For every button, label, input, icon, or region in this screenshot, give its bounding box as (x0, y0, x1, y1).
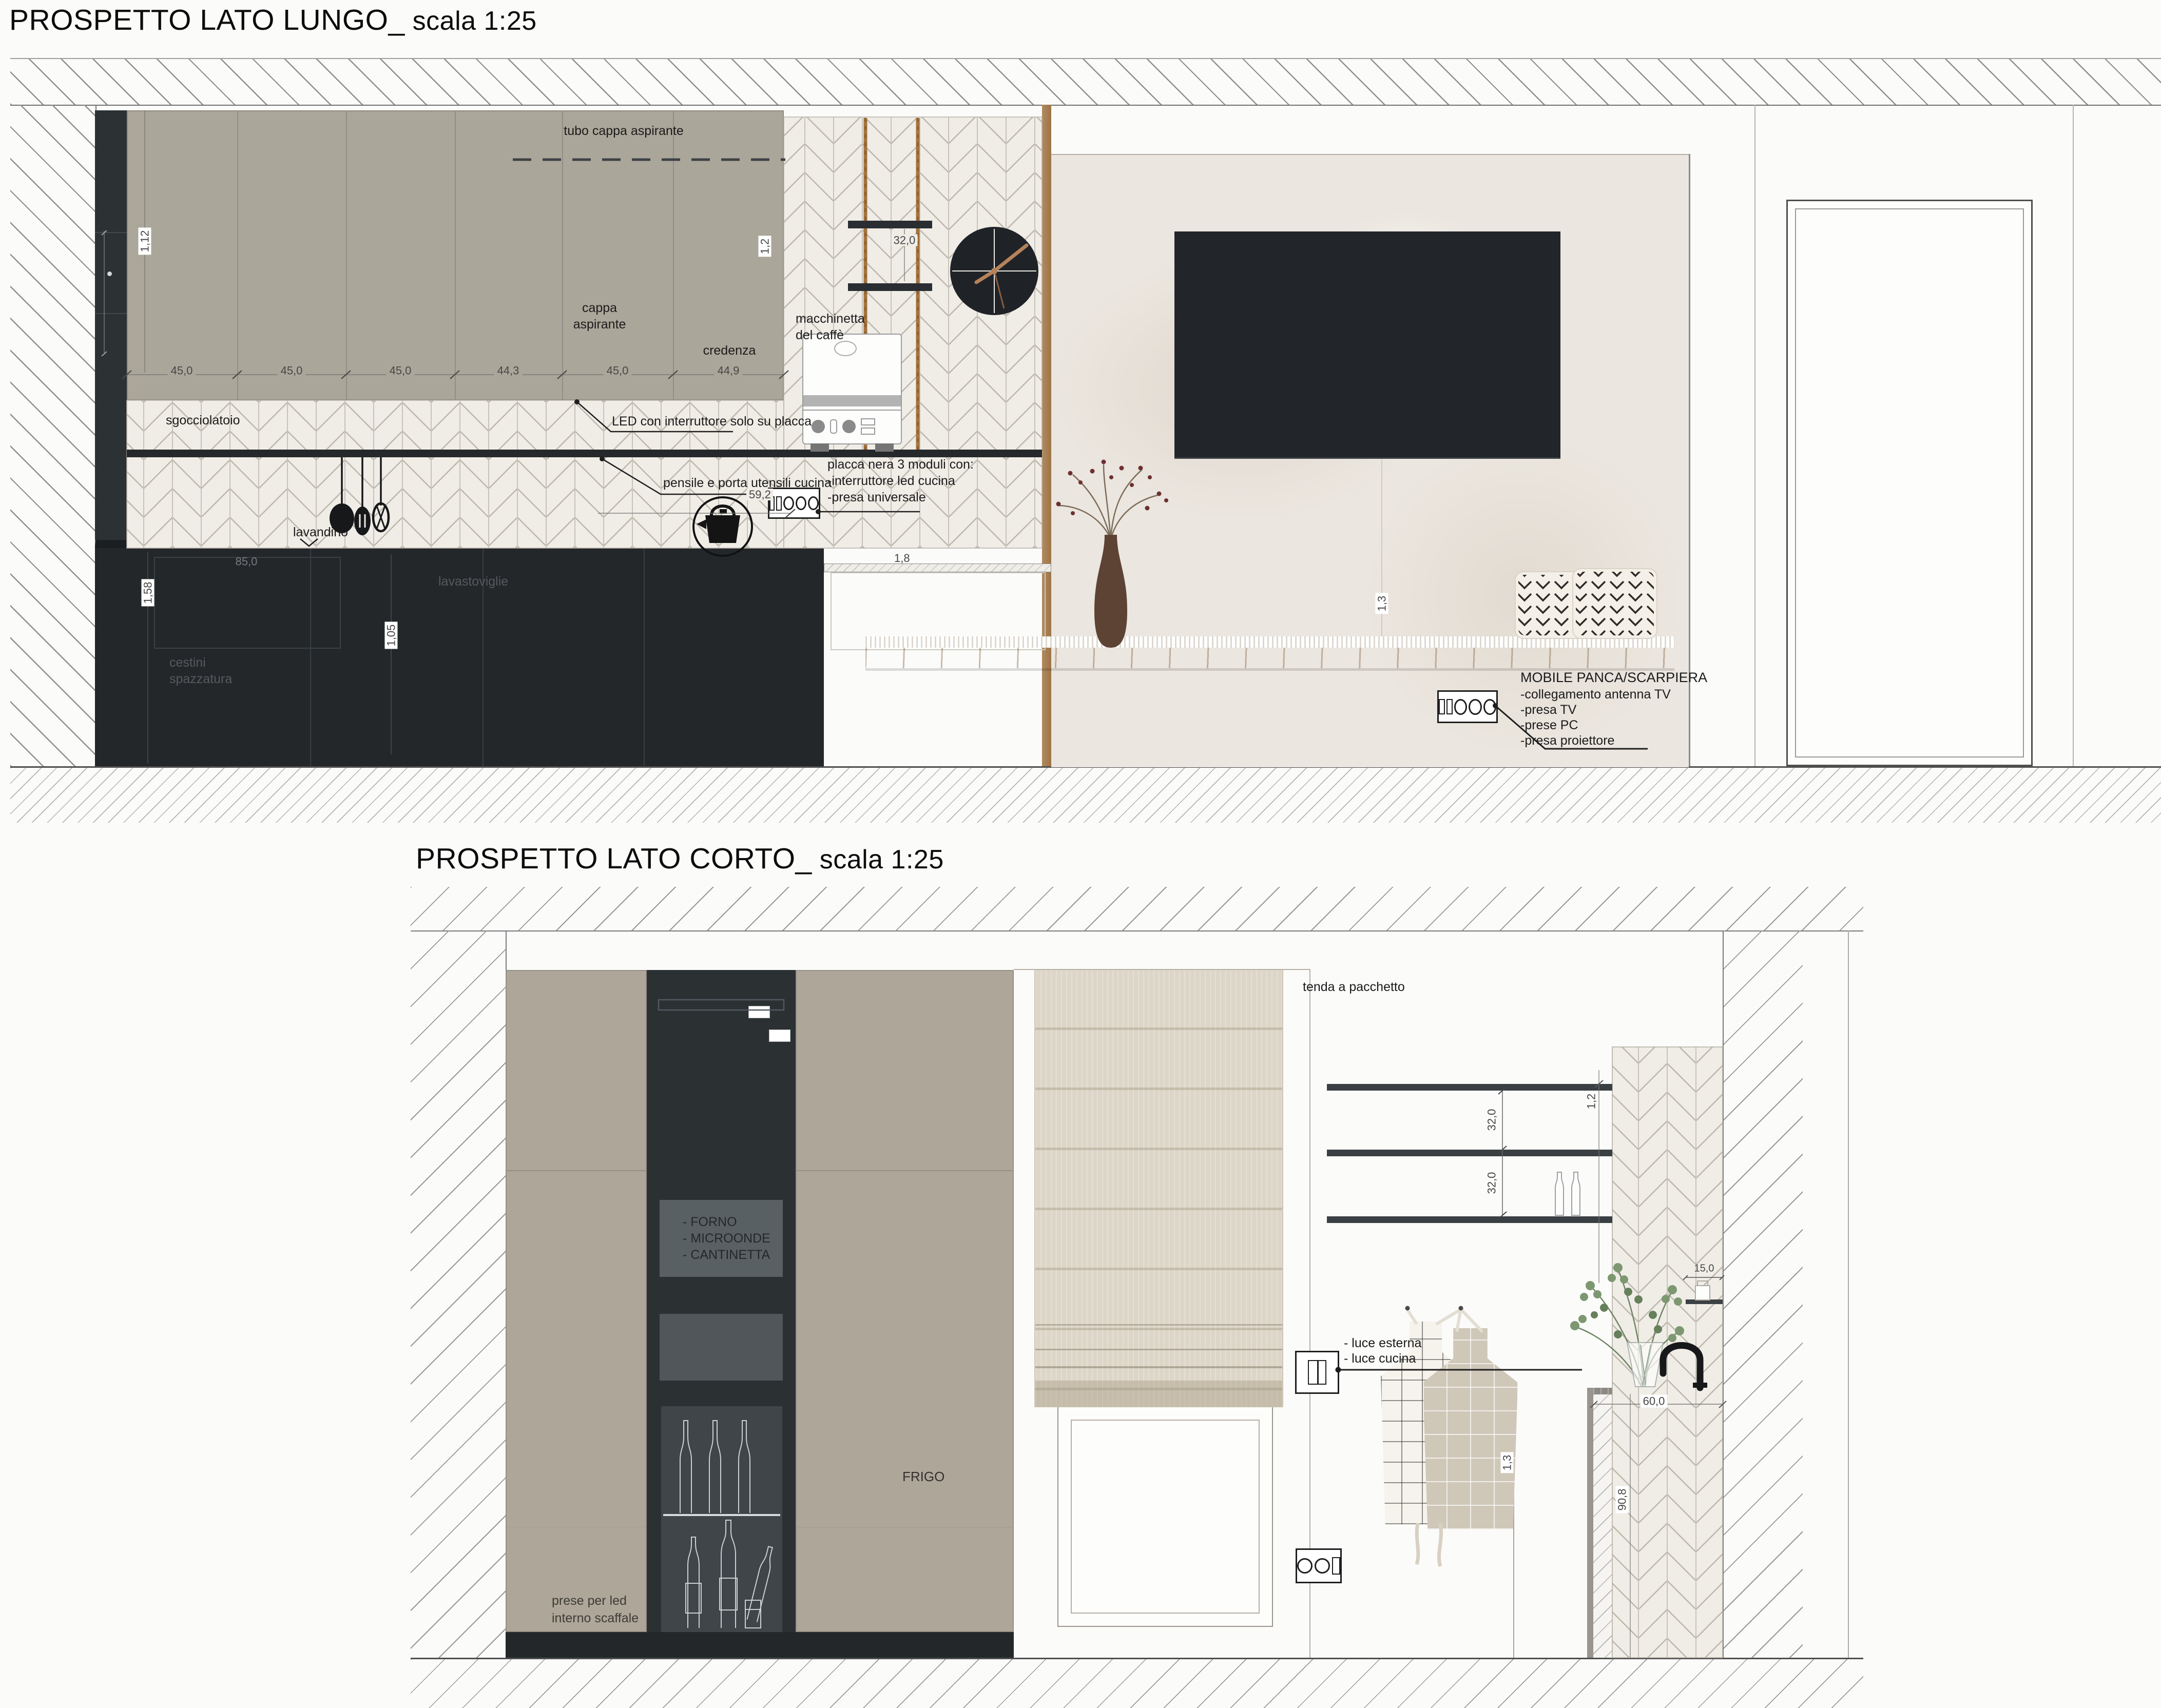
label-mobile-4: -prese PC (1520, 717, 1578, 733)
label-tenda: tenda a pacchetto (1303, 979, 1405, 995)
cabinet-divider (507, 1170, 646, 1171)
cabinet-divider (507, 1527, 646, 1528)
label-microonde: - MICROONDE (683, 1231, 770, 1246)
wine-rack-niche (661, 1406, 782, 1632)
dim-shelf-right: 1,2 (1585, 1094, 1597, 1110)
kitchen-utensils (330, 457, 389, 535)
socket-round-pin (808, 496, 819, 510)
niche-shelf (1686, 1281, 1723, 1304)
machine-dial (842, 420, 856, 433)
dim-switch-height: 1,3 (1500, 1452, 1513, 1473)
label-tubo-cappa: tubo cappa aspirante (564, 123, 684, 139)
door-inner-frame (1795, 208, 2024, 758)
sink-countertop (1593, 1388, 1723, 1394)
label-lavastoviglie: lavastoviglie (438, 574, 508, 589)
dim-module-2: 45,0 (278, 364, 306, 376)
faucet (1663, 1346, 1707, 1388)
socket-round-pin (1469, 699, 1481, 715)
cabinet-handle (107, 271, 112, 276)
roman-shade (1034, 970, 1283, 1407)
tall-cabinet-left-column (506, 970, 647, 1632)
dim-shelf-1: 32,0 (1485, 1109, 1497, 1131)
dim-module-5: 45,0 (604, 364, 632, 376)
label-mobile-title: MOBILE PANCA/SCARPIERA (1520, 669, 1707, 686)
wall-shelves (1327, 1084, 1612, 1223)
label-macchinetta-1: macchinetta (796, 311, 865, 326)
microwave-niche-panel (660, 1314, 783, 1381)
ceiling-section-hatch (10, 58, 2161, 106)
apron-hook (1459, 1306, 1463, 1311)
cabinet-divider (673, 111, 674, 399)
dim-rope-shelf: 32,0 (892, 234, 918, 246)
shelf-dim-line (1498, 1087, 1507, 1219)
dim-module-1: 45,0 (168, 364, 196, 376)
dim-sink-width: 60,0 (1641, 1394, 1668, 1407)
socket-round-pin (1483, 699, 1496, 715)
switch-module (1308, 1360, 1326, 1385)
label-frigo: FRIGO (902, 1469, 944, 1485)
shelf-bottles (1555, 1172, 1580, 1215)
label-mobile-5: -presa proiettore (1520, 733, 1614, 748)
socket-round-pin (783, 496, 794, 510)
drawing2-scale: scala 1:25 (812, 845, 944, 875)
label-credenza: credenza (703, 343, 756, 358)
socket-module (776, 496, 781, 511)
floor-section-hatch-2 (411, 1658, 1863, 1708)
socket-round-pin (1297, 1558, 1313, 1574)
socket-module (1446, 699, 1453, 714)
black-plate-socket-icon (768, 488, 820, 519)
label-cappa-1: cappa (582, 300, 617, 316)
shade-fold (1035, 1324, 1282, 1326)
label-sgocciolatoio: sgocciolatoio (166, 413, 240, 428)
drawing2-title-text: PROSPETTO LATO CORTO_ (416, 842, 812, 875)
apron-hook (1405, 1306, 1410, 1311)
dim-upper-height: 1,12 (138, 228, 151, 255)
cabinet-divider (797, 1170, 1013, 1171)
wall-clock (950, 227, 1038, 315)
small-dim-tag (769, 1030, 790, 1042)
marble-countertop (95, 540, 824, 548)
machine-dial (812, 420, 825, 433)
cabinet-divider (95, 313, 127, 314)
dim-right-height: 1,2 (758, 236, 771, 257)
dim-module-3: 45,0 (387, 364, 415, 376)
shade-bottom-band (1035, 1381, 1282, 1407)
left-wall-section-hatch-2 (411, 930, 507, 1658)
bench-wood-top (865, 648, 1674, 668)
window-lower-frame (1057, 1406, 1273, 1627)
socket-module (1439, 699, 1445, 714)
cabinet-plinth (506, 1632, 1014, 1658)
window-inner-frame (1071, 1420, 1260, 1614)
drawing2-title: PROSPETTO LATO CORTO_ scala 1:25 (416, 842, 944, 876)
cabinet-divider (562, 111, 563, 399)
label-cantinetta: - CANTINETTA (683, 1247, 770, 1263)
placca-leader (816, 509, 920, 514)
counter-side-panel (1587, 1388, 1593, 1658)
label-luce-2: - luce cucina (1344, 1351, 1416, 1366)
niche-dim-line (1683, 1275, 1724, 1280)
tv-screen (1174, 231, 1560, 459)
floor-section-hatch (10, 766, 2161, 823)
espresso-machine (802, 334, 902, 444)
switch-divider (1317, 1361, 1319, 1384)
shade-fold (1035, 1349, 1282, 1350)
apron-ties (1417, 1523, 1441, 1566)
socket-module (1332, 1557, 1340, 1575)
dim-bench: 1,8 (894, 552, 910, 564)
light-switch-icon (1295, 1351, 1339, 1394)
dim-drawer: 85,0 (236, 555, 258, 567)
small-dim-tag (748, 1006, 770, 1018)
bench-socket-icon (1437, 690, 1498, 723)
upper-cabinets (127, 110, 784, 400)
label-placca-2: -interruttore led cucina (827, 473, 955, 489)
wall-panel-line-2 (1848, 930, 1849, 1658)
label-mobile-2: -collegamento antenna TV (1520, 687, 1671, 702)
drawing1-scale: scala 1:25 (405, 6, 537, 36)
dim-niche: 15,0 (1694, 1264, 1714, 1274)
bench-cushion-ribbed (865, 636, 1674, 648)
machine-lever (830, 419, 837, 434)
cabinet-divider (95, 232, 127, 233)
shade-fold (1035, 1366, 1282, 1368)
eucalyptus-plant (1570, 1263, 1684, 1387)
wall-panel-line (1754, 105, 1755, 766)
cabinet-divider (644, 548, 645, 766)
dim-depth: 59,2 (747, 489, 773, 500)
socket-round-pin (1315, 1558, 1330, 1574)
label-prese-2: interno scaffale (552, 1610, 639, 1626)
dim-module-6: 44,9 (715, 364, 743, 376)
machine-band (803, 395, 901, 406)
machine-foot (811, 443, 829, 452)
dim-base-height: 1,58 (141, 579, 154, 607)
machine-gauge (834, 341, 857, 356)
kettle (697, 506, 740, 543)
left-wall-section-hatch (10, 105, 97, 766)
label-lavandino: lavandino (293, 525, 348, 540)
wall-panel-line (2073, 105, 2074, 766)
label-mobile-3: -presa TV (1520, 702, 1576, 717)
machine-foot (875, 443, 894, 452)
dim-module-4: 44,3 (494, 364, 523, 376)
label-cestini-1: cestini (169, 655, 206, 670)
dim-counter-height: 90,8 (1615, 1486, 1628, 1513)
socket-round-pin (1454, 699, 1467, 715)
utensil-shelf (127, 450, 1042, 457)
cabinet-divider (346, 111, 347, 399)
dim-wall-height: 1,3 (1375, 593, 1388, 614)
socket-round-pin (796, 496, 806, 510)
label-luce-1: - luce esterna (1344, 1335, 1421, 1351)
door (1786, 200, 2033, 766)
dim-shelf-2: 32,0 (1485, 1172, 1497, 1194)
label-cappa-2: aspirante (573, 317, 626, 332)
dim-base-height-2: 1,05 (384, 622, 397, 649)
machine-panel (803, 410, 901, 442)
label-macchinetta-2: del caffè (796, 327, 844, 343)
label-cestini-2: spazzatura (169, 671, 232, 687)
power-socket-icon (1296, 1548, 1342, 1583)
cabinet-divider (237, 111, 238, 399)
right-wall-section-hatch-2 (1723, 930, 1803, 1658)
drawing1-title: PROSPETTO LATO LUNGO_ scala 1:25 (9, 3, 537, 37)
drawing1-title-text: PROSPETTO LATO LUNGO_ (9, 4, 405, 36)
label-led: LED con interruttore solo su placca (612, 414, 812, 429)
tall-cabinet-fridge-column (796, 970, 1014, 1632)
label-placca-1: placca nera 3 moduli con: (827, 457, 974, 472)
sink-base-hatch (1593, 1394, 1723, 1658)
label-forno: - FORNO (683, 1214, 737, 1230)
drawer-outline (154, 557, 341, 649)
label-placca-3: -presa universale (827, 490, 926, 505)
label-prese-1: prese per led (552, 1593, 627, 1608)
glass-vase (1627, 1343, 1663, 1387)
machine-switch (861, 428, 875, 435)
side-counter (824, 564, 1051, 572)
machine-switches (861, 418, 875, 435)
ceiling-section-hatch-2 (411, 887, 1863, 931)
cabinet-divider (797, 1527, 1013, 1528)
depth-dim-line (598, 509, 795, 517)
cabinet-divider (455, 111, 456, 399)
machine-switch (861, 418, 875, 425)
